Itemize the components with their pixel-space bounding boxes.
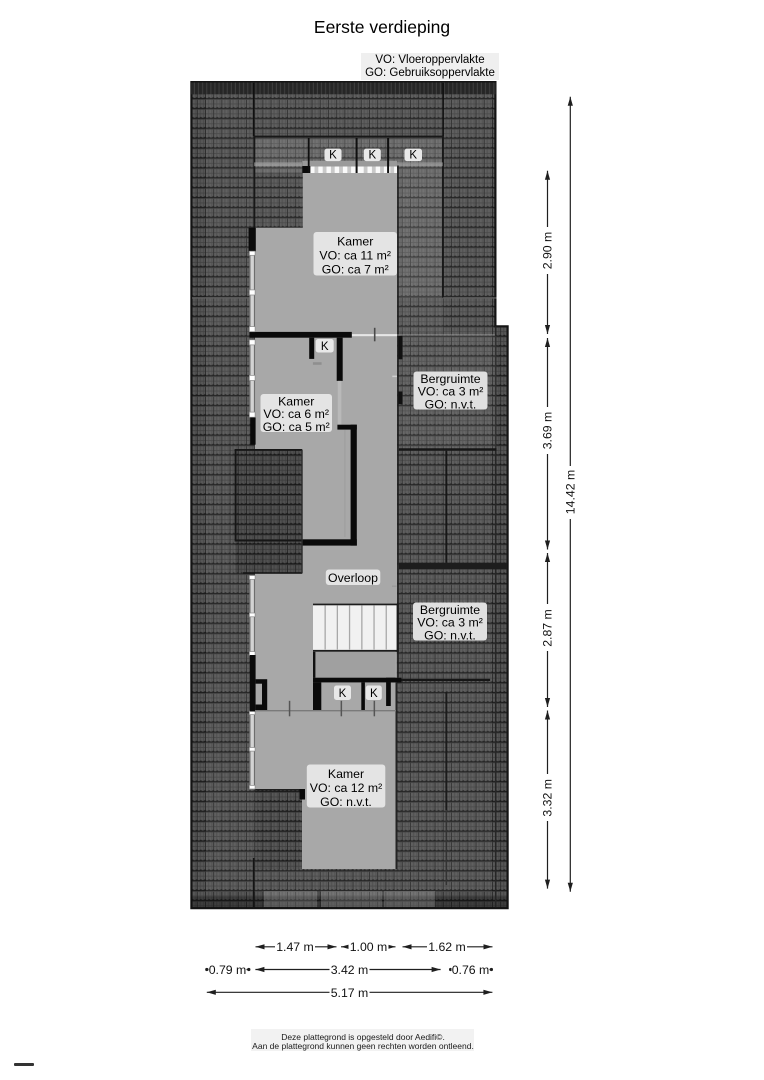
svg-text:GO: ca 5 m²: GO: ca 5 m² [263,420,330,434]
svg-text:K: K [339,688,347,700]
svg-text:VO: ca 12 m²: VO: ca 12 m² [310,781,382,795]
svg-text:5.17 m: 5.17 m [331,986,369,1000]
svg-text:GO: n.v.t.: GO: n.v.t. [425,397,477,411]
svg-text:K: K [368,150,376,162]
svg-text:K: K [329,150,337,162]
svg-text:0.76 m: 0.76 m [452,963,490,977]
svg-text:GO: ca 7 m²: GO: ca 7 m² [322,263,389,277]
svg-text:Overloop: Overloop [328,571,378,585]
svg-text:2.90 m: 2.90 m [541,232,555,270]
svg-text:1.47 m: 1.47 m [276,940,314,954]
svg-text:Kamer: Kamer [328,767,364,781]
svg-text:GO: n.v.t.: GO: n.v.t. [424,628,476,642]
svg-text:VO: ca 11 m²: VO: ca 11 m² [319,249,391,263]
svg-text:0.79 m: 0.79 m [209,963,247,977]
svg-text:K: K [370,688,378,700]
svg-text:2.87 m: 2.87 m [541,609,555,647]
svg-text:1.62 m: 1.62 m [428,940,466,954]
svg-text:14.42 m: 14.42 m [563,470,577,514]
svg-text:3.32 m: 3.32 m [541,779,555,817]
svg-text:1.00 m: 1.00 m [350,940,388,954]
svg-text:K: K [321,341,329,353]
svg-text:GO: n.v.t.: GO: n.v.t. [320,795,372,809]
svg-text:3.69 m: 3.69 m [541,412,555,450]
svg-text:3.42 m: 3.42 m [331,963,369,977]
svg-text:K: K [409,150,417,162]
svg-text:Kamer: Kamer [337,235,373,249]
